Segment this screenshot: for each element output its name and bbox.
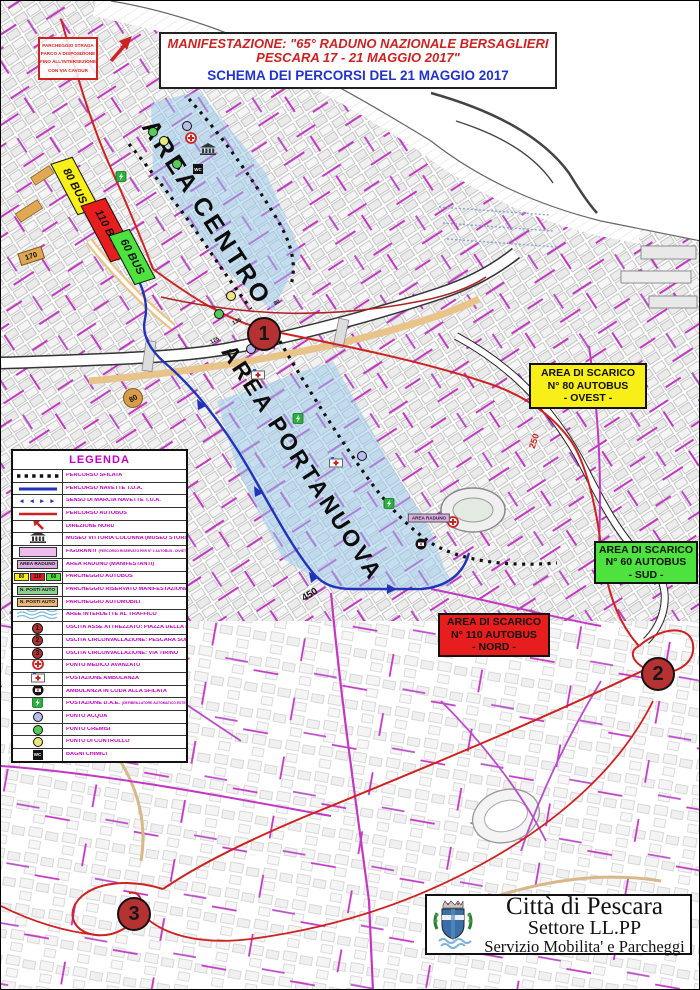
schema-subtitle: SCHEMA DEI PERCORSI DEL 21 MAGGIO 2017	[161, 68, 555, 83]
water-point-icon	[182, 121, 192, 131]
legend-item-subtext: (PERCORSO RISERVATO PER N° 3 AUTOBUS - D…	[98, 549, 186, 553]
legend-symbol-cell: N. POSTI AUTO	[13, 584, 63, 596]
legend-item: FIGURANTI(PERCORSO RISERVATO PER N° 3 AU…	[13, 545, 186, 558]
legend-item: PUNTO ACQUA	[13, 710, 186, 723]
checkpoint-icon	[33, 737, 43, 747]
legend-item-label: PUNTO MEDICO AVANZATO	[63, 663, 140, 669]
cremisi-point-icon	[148, 127, 158, 137]
parade-route-line-icon	[15, 470, 61, 482]
legend-item-text: PERCORSO AUTOBUS	[66, 511, 127, 516]
exit-2-icon: 2	[32, 635, 43, 646]
legend-item: POSTAZIONE D.A.E.(DEFIBRILLATORE AUTOMAT…	[13, 697, 186, 710]
legend-item-text: POSTAZIONE D.A.E.	[66, 701, 120, 706]
legend-item-text: PERCORSO NAVETTE T.U.A.	[66, 486, 142, 491]
legend-symbol-cell	[13, 508, 63, 520]
legend-item: PUNTO DI CONTROLLO	[13, 735, 186, 748]
legend-item-label: PERCORSO NAVETTE T.U.A.	[63, 486, 142, 492]
dae-icon	[384, 496, 395, 514]
legend-item-label: AREA RADUNO (MANIFESTANTI)	[63, 562, 154, 568]
legend-symbol-cell: 1	[13, 622, 63, 634]
legend-item: DIREZIONE NORD	[13, 520, 186, 533]
footer-box: Città di Pescara Settore LL.PP Servizio …	[425, 894, 692, 955]
legend-item-text: AMBULANZA IN CODA ALLA SFILATA	[66, 689, 167, 694]
ambulance-icon	[329, 455, 343, 473]
ambulance-icon	[31, 673, 45, 685]
legend-symbol-cell: AREA RADUNO	[13, 559, 63, 571]
legend-item: N. POSTI AUTOPARCHEGGIO AUTOMOBILI	[13, 596, 186, 609]
area-raduno-tag-icon: AREA RADUNO	[17, 560, 59, 569]
legend-item-label: PUNTO DI CONTROLLO	[63, 739, 130, 745]
legend-symbol-cell: ◄ ◄ ► ►	[13, 495, 63, 507]
legend-symbol-cell	[13, 521, 63, 533]
legend-item: AREA RADUNOAREA RADUNO (MANIFESTANTI)	[13, 558, 186, 571]
legend-symbol-cell	[13, 724, 63, 736]
wc-icon: WC	[33, 750, 43, 760]
cremisi-point-icon	[33, 725, 43, 735]
legend-symbol-cell	[13, 610, 63, 622]
legend-item-label: PERCORSO AUTOBUS	[63, 511, 127, 517]
scarico-line: N° 80 AUTOBUS	[531, 380, 645, 393]
legend-item-text: PUNTO CREMISI	[66, 727, 110, 732]
legend-item-label: SENSO DI MARCIA NAVETTE T.U.A.	[63, 498, 161, 504]
first-aid-icon	[185, 131, 197, 149]
pescara-event-map-page: MANIFESTAZIONE: "65° RADUNO NAZIONALE BE…	[0, 0, 700, 990]
legend-symbol-cell: N. POSTI AUTO	[13, 597, 63, 609]
legend-symbol-cell	[13, 686, 63, 698]
bus-parking-tags-icon: 8011060	[14, 573, 61, 581]
legend-item-text: DIREZIONE NORD	[66, 524, 114, 529]
figuranti-swatch-icon	[19, 547, 57, 557]
legend-item-label: USCITA CIRCONVALLAZIONE: PESCARA SUD	[63, 638, 186, 644]
footer-city-name: Città di Pescara	[479, 895, 690, 919]
legend-item-text: POSTAZIONE AMBULANZA	[66, 676, 139, 681]
legend-item: N. POSTI AUTOPARCHEGGIO RISERVATO MANIFE…	[13, 583, 186, 596]
scarico-line: N° 60 AUTOBUS	[596, 556, 696, 569]
title-box: MANIFESTAZIONE: "65° RADUNO NAZIONALE BE…	[159, 32, 557, 89]
legend-item-label: PUNTO ACQUA	[63, 714, 107, 720]
legend-symbol-cell: WC	[13, 749, 63, 761]
checkpoint-icon	[159, 136, 169, 146]
legend-item: 3USCITA CIRCONVALLAZIONE: VIA TIRINO	[13, 647, 186, 660]
legend-item-label: USCITA CIRCONVALLAZIONE: VIA TIRINO	[63, 651, 178, 657]
legend-item-label: PARCHEGGIO AUTOBUS	[63, 574, 133, 580]
exit-1-icon: 1	[32, 623, 43, 634]
legend-symbol-cell	[13, 533, 63, 545]
parking-note-line: FINO ALL'INTERSEZIONE	[40, 58, 96, 66]
scarico-box-sud: AREA DI SCARICON° 60 AUTOBUS- SUD -	[594, 541, 698, 584]
museum-icon	[30, 533, 46, 545]
legend-item-text: AREA RADUNO (MANIFESTANTI)	[66, 562, 154, 567]
museum-icon	[200, 142, 216, 160]
shuttle-route-line-icon	[15, 483, 61, 495]
first-aid-icon	[32, 660, 44, 672]
exit-marker-2: 2	[641, 657, 675, 691]
footer-service: Servizio Mobilita' e Parcheggi	[479, 938, 690, 955]
legend-symbol-cell	[13, 660, 63, 672]
legend-item: PERCORSO NAVETTE T.U.A.	[13, 482, 186, 495]
legend-item-label: POSTAZIONE D.A.E.(DEFIBRILLATORE AUTOMAT…	[63, 701, 186, 707]
exit-marker-3: 3	[117, 897, 151, 931]
wc-icon: WC	[193, 164, 203, 174]
water-point-icon	[33, 712, 43, 722]
water-point-icon	[357, 451, 367, 461]
shuttle-direction-arrows-icon: ◄ ◄ ► ►	[18, 498, 56, 505]
pescara-coat-of-arms-icon	[427, 899, 479, 951]
legend-item: MUSEO VITTORIA COLONNA (MUSEO STORICO BE…	[13, 532, 186, 545]
legend-item-label: DIREZIONE NORD	[63, 524, 114, 530]
legend-item-text: BAGNI CHIMICI	[66, 752, 107, 757]
scarico-line: AREA DI SCARICO	[596, 544, 696, 557]
scarico-line: - OVEST -	[531, 392, 645, 405]
legend-item: PERCORSO SFILATA	[13, 469, 186, 482]
legend-symbol-cell	[13, 470, 63, 482]
legend-item: AREE INTERDETTE AL TRAFFICO	[13, 609, 186, 622]
legend: LEGENDA PERCORSO SFILATAPERCORSO NAVETTE…	[11, 449, 188, 763]
ambulance-queue-icon	[415, 537, 427, 555]
ambulance-queue-icon	[32, 686, 44, 698]
legend-item-label: PARCHEGGIO RISERVATO MANIFESTAZIONE	[63, 587, 186, 593]
legend-title: LEGENDA	[13, 451, 186, 469]
scarico-line: N° 110 AUTOBUS	[440, 629, 548, 642]
legend-item-text: SENSO DI MARCIA NAVETTE T.U.A.	[66, 498, 161, 503]
legend-item-text: PERCORSO SFILATA	[66, 473, 122, 478]
legend-symbol-cell: 3	[13, 648, 63, 660]
legend-item-label: POSTAZIONE AMBULANZA	[63, 676, 139, 682]
legend-item: POSTAZIONE AMBULANZA	[13, 672, 186, 685]
legend-item-label: FIGURANTI(PERCORSO RISERVATO PER N° 3 AU…	[63, 549, 186, 555]
legend-item-text: PUNTO DI CONTROLLO	[66, 739, 130, 744]
legend-item: 8011060PARCHEGGIO AUTOBUS	[13, 571, 186, 584]
legend-item: PUNTO CREMISI	[13, 723, 186, 736]
legend-symbol-cell	[13, 546, 63, 558]
legend-item: AMBULANZA IN CODA ALLA SFILATA	[13, 685, 186, 698]
legend-item-text: FIGURANTI	[66, 549, 96, 554]
reserved-parking-tag-icon: N. POSTI AUTO	[17, 586, 58, 595]
scarico-line: - NORD -	[440, 641, 548, 654]
legend-item-label: BAGNI CHIMICI	[63, 752, 107, 758]
car-parking-tag-icon: N. POSTI AUTO	[17, 598, 58, 607]
legend-item: WCBAGNI CHIMICI	[13, 748, 186, 761]
legend-symbol-cell: 2	[13, 635, 63, 647]
scarico-line: AREA DI SCARICO	[440, 616, 548, 629]
legend-item-text: PUNTO ACQUA	[66, 714, 107, 719]
legend-symbol-cell	[13, 736, 63, 748]
legend-item: 1USCITA ASSE ATTREZZATO: PIAZZA DELLA MA…	[13, 621, 186, 634]
legend-symbol-cell	[13, 698, 63, 710]
legend-item-text: PARCHEGGIO AUTOMOBILI	[66, 600, 140, 605]
legend-item-text: USCITA ASSE ATTREZZATO: PIAZZA DELLA MAR…	[66, 625, 186, 630]
event-title-line2: PESCARA 17 - 21 MAGGIO 2017"	[161, 51, 555, 65]
dae-icon	[293, 411, 304, 429]
parking-note-box: PARCHEGGIO STRADAPARCO A DISPOSIZIONEFIN…	[38, 37, 98, 80]
checkpoint-icon	[226, 291, 236, 301]
legend-item-text: AREE INTERDETTE AL TRAFFICO	[66, 612, 157, 617]
legend-item-label: PERCORSO SFILATA	[63, 473, 122, 479]
legend-item-text: PUNTO MEDICO AVANZATO	[66, 663, 140, 668]
legend-item-label: AMBULANZA IN CODA ALLA SFILATA	[63, 689, 167, 695]
legend-symbol-cell	[13, 711, 63, 723]
scarico-line: AREA DI SCARICO	[531, 367, 645, 380]
parking-note-line: PARCO A DISPOSIZIONE	[40, 50, 96, 58]
legend-item-label: AREE INTERDETTE AL TRAFFICO	[63, 612, 157, 618]
dae-icon	[32, 698, 43, 710]
bus-route-line-icon	[15, 508, 61, 520]
legend-symbol-cell	[13, 483, 63, 495]
legend-item-label: PUNTO CREMISI	[63, 727, 110, 733]
legend-item: 2USCITA CIRCONVALLAZIONE: PESCARA SUD	[13, 634, 186, 647]
exit-marker-1: 1	[247, 317, 281, 351]
legend-item-text: USCITA CIRCONVALLAZIONE: VIA TIRINO	[66, 651, 178, 656]
ambulance-icon	[251, 367, 265, 385]
scarico-box-ovest: AREA DI SCARICON° 80 AUTOBUS- OVEST -	[529, 363, 647, 409]
legend-item-label: MUSEO VITTORIA COLONNA (MUSEO STORICO BE…	[63, 536, 186, 542]
legend-symbol-cell: 8011060	[13, 572, 63, 584]
area-raduno-map-tag: AREA RADUNO	[408, 514, 450, 523]
legend-item: PERCORSO AUTOBUS	[13, 507, 186, 520]
legend-item-text: PARCHEGGIO AUTOBUS	[66, 574, 133, 579]
footer-sector: Settore LL.PP	[479, 919, 690, 938]
legend-item: PUNTO MEDICO AVANZATO	[13, 659, 186, 672]
event-title-line1: MANIFESTAZIONE: "65° RADUNO NAZIONALE BE…	[161, 37, 555, 51]
dae-icon	[116, 169, 127, 187]
legend-item-text: USCITA CIRCONVALLAZIONE: PESCARA SUD	[66, 638, 186, 643]
legend-item-text: MUSEO VITTORIA COLONNA (MUSEO STORICO BE…	[66, 536, 186, 541]
legend-item: ◄ ◄ ► ►SENSO DI MARCIA NAVETTE T.U.A.	[13, 494, 186, 507]
scarico-line: - SUD -	[596, 569, 696, 582]
cremisi-point-icon	[172, 159, 182, 169]
scarico-box-nord: AREA DI SCARICON° 110 AUTOBUS- NORD -	[438, 613, 550, 657]
legend-item-label: PARCHEGGIO AUTOMOBILI	[63, 600, 140, 606]
legend-symbol-cell	[13, 673, 63, 685]
legend-item-label: USCITA ASSE ATTREZZATO: PIAZZA DELLA MAR…	[63, 625, 186, 631]
no-traffic-waves-icon	[17, 610, 59, 622]
legend-item-subtext: (DEFIBRILLATORE AUTOMATICO ESTERNO)	[122, 701, 186, 705]
parking-note-line: PARCHEGGIO STRADA	[40, 42, 96, 50]
legend-item-text: PARCHEGGIO RISERVATO MANIFESTAZIONE	[66, 587, 186, 592]
north-arrow-icon	[31, 521, 45, 533]
parking-note-line: CON VIA CAVOUR	[40, 67, 96, 75]
exit-3-icon: 3	[32, 648, 43, 659]
cremisi-point-icon	[214, 309, 224, 319]
